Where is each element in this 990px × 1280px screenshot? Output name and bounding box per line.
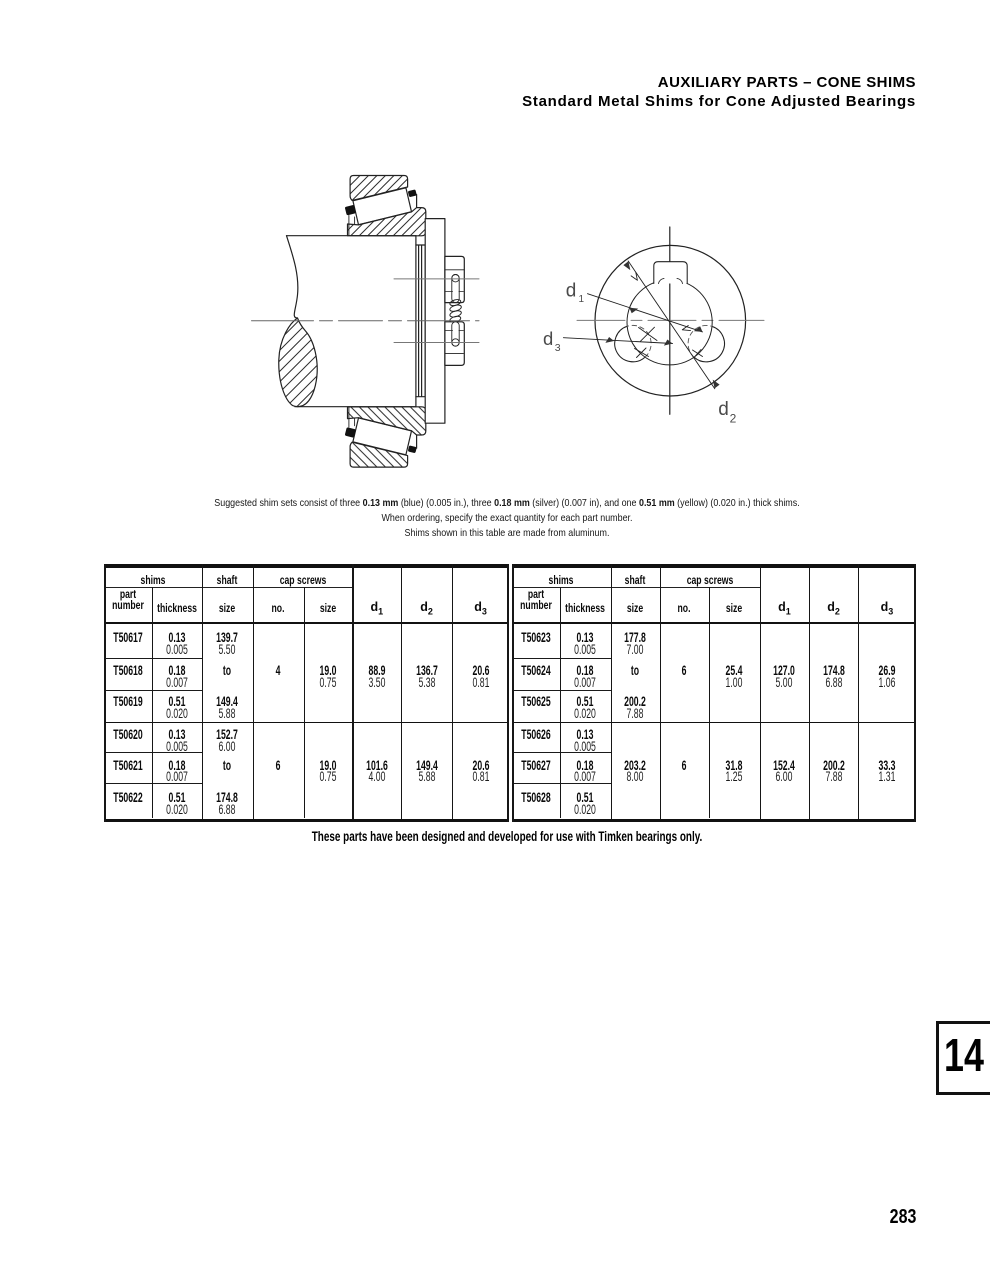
svg-text:3: 3 <box>555 342 561 354</box>
svg-text:1: 1 <box>579 294 585 305</box>
svg-text:2: 2 <box>730 411 737 425</box>
svg-text:d: d <box>543 328 553 349</box>
svg-text:d: d <box>718 399 729 420</box>
svg-text:d: d <box>566 280 577 301</box>
